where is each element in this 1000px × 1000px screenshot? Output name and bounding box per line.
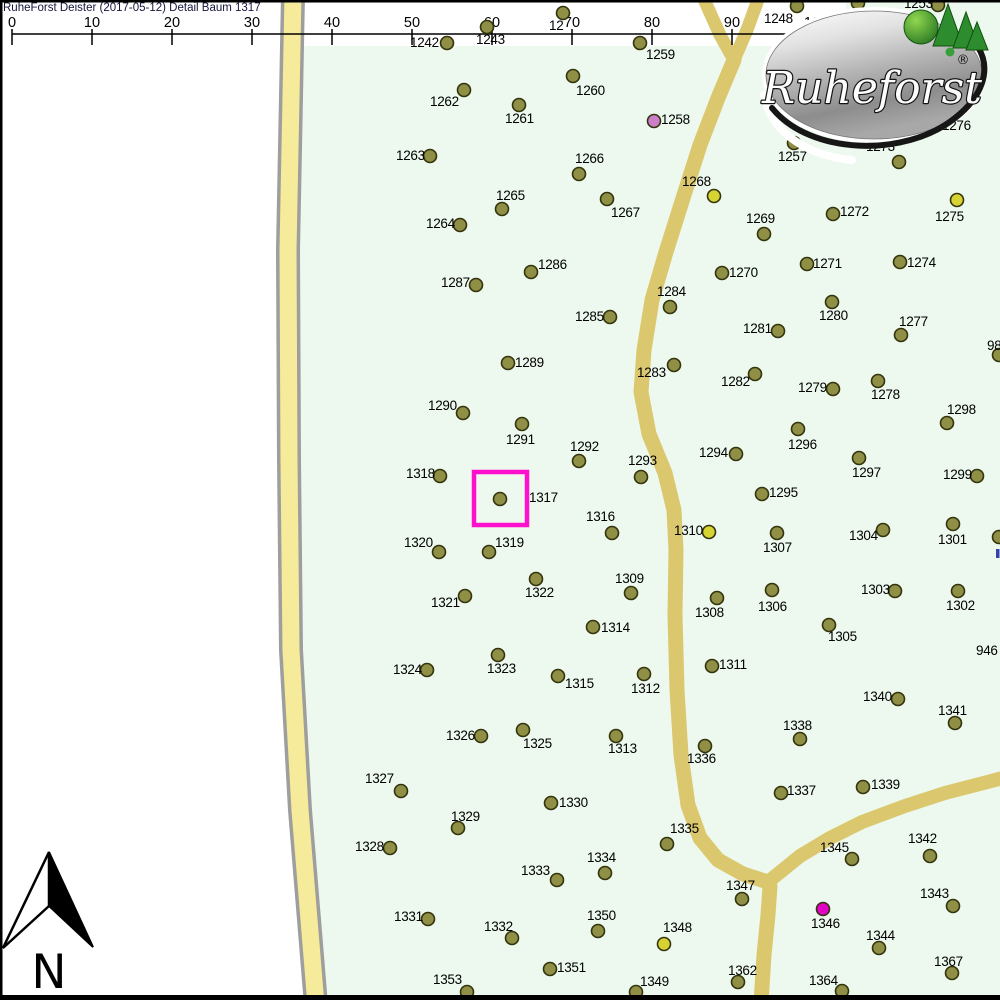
tree-dot-1289 [502,357,515,370]
tree-label-1289: 1289 [515,355,544,370]
tree-dot-1260 [567,70,580,83]
tree-label-1287: 1287 [441,275,470,290]
tree-label-1248: 1248 [764,11,793,26]
tree-dot-1315 [552,670,565,683]
tree-label-1325: 1325 [523,736,552,751]
tree-label-1307: 1307 [763,540,792,555]
tree-label-1277: 1277 [899,314,928,329]
tree-dot-1333 [551,874,564,887]
tree-label-1266: 1266 [575,151,604,166]
tree-label-12: 12 [549,18,563,33]
tree-label-1323: 1323 [487,661,516,676]
tree-label-1298: 1298 [947,402,976,417]
tree-label-1344: 1344 [866,928,896,943]
tree-label-1261: 1261 [505,111,534,126]
tree-label-1345: 1345 [820,840,849,855]
tree-label-1332: 1332 [484,919,513,934]
tree-dot-1304 [877,524,890,537]
tree-label-1285: 1285 [575,309,604,324]
tree-label-1346: 1346 [811,916,840,931]
tree-label-1350: 1350 [587,908,616,923]
tree-dot-1261 [513,99,526,112]
tree-label-1317: 1317 [529,490,558,505]
tree-label-1295: 1295 [769,485,798,500]
border-top [0,0,1000,3]
tree-dot-1294 [730,448,743,461]
scalebar-label-90: 90 [724,15,740,31]
tree-label-1292: 1292 [570,439,599,454]
tree-label-1262: 1262 [430,94,459,109]
tree-dot-1310 [703,526,716,539]
tree-dot-1320 [433,546,446,559]
tree-label-1328: 1328 [355,839,384,854]
tree-label-1274: 1274 [907,255,937,270]
tree-dot-1344 [873,942,886,955]
tree-label-1269: 1269 [746,211,775,226]
tree-label-1242: 1242 [410,35,439,50]
tree-dot-1292 [573,455,586,468]
tree-label-1294: 1294 [699,445,729,460]
forest-map: 0102030405060708090100m RuheForst Deiste… [0,0,1000,1000]
tree-label-1340: 1340 [863,689,892,704]
tree-label-946: 946 [976,643,998,658]
tree-label-1331: 1331 [394,909,423,924]
tree-label-1265: 1265 [496,188,525,203]
tree-dot-1273 [893,156,906,169]
tree-label-1337: 1337 [787,783,816,798]
tree-dot-1263 [424,150,437,163]
tree-dot-1279 [827,383,840,396]
tree-dot-1328 [384,842,397,855]
tree-label-1296: 1296 [788,437,817,452]
unknown-blue-mark [996,549,1000,558]
tree-label-1313: 1313 [608,741,637,756]
tree-label-1322: 1322 [525,585,554,600]
tree-dot-1275 [951,194,964,207]
tree-dot-1312 [638,668,651,681]
tree-dot-unlabeled [993,531,1000,544]
tree-label-1326: 1326 [446,728,475,743]
tree-label-1303: 1303 [861,582,890,597]
tree-label-1342: 1342 [908,831,937,846]
tree-label-1349: 1349 [640,974,669,989]
tree-dot-1322 [530,573,543,586]
tree-label-1279: 1279 [798,380,827,395]
tree-label-1259: 1259 [646,47,675,62]
scalebar-label-30: 30 [244,15,260,31]
tree-label-1302: 1302 [946,598,975,613]
tree-dot-1278 [872,375,885,388]
border-left [0,0,3,1000]
tree-dot-1302 [952,585,965,598]
tree-label-1304: 1304 [849,528,879,543]
tree-label-1267: 1267 [611,205,640,220]
tree-label-1243: 1243 [476,32,505,47]
tree-label-1293: 1293 [628,453,657,468]
tree-dot-1317 [494,493,507,506]
tree-dot-1286 [525,266,538,279]
road-west [288,0,316,1000]
tree-dot-1264 [454,219,467,232]
tree-dot-1311 [706,660,719,673]
tree-dot-1301 [947,518,960,531]
tree-label-1362: 1362 [728,963,757,978]
tree-dot-1325 [517,724,530,737]
logo-deciduous-tree-icon [904,10,938,44]
map-canvas: 0102030405060708090100m RuheForst Deiste… [0,0,1000,1000]
road-branch-south [761,886,770,1000]
scalebar-label-0: 0 [8,15,16,31]
scalebar-label-50: 50 [404,15,420,31]
logo-wordmark: Ruheforst [761,63,982,114]
tree-dot-1271 [801,258,814,271]
tree-dot-1295 [756,488,769,501]
tree-dot-1338 [794,733,807,746]
tree-dot-1342 [924,850,937,863]
tree-dot-1280 [826,296,839,309]
tree-label-1315: 1315 [565,676,594,691]
tree-dot-1287 [470,279,483,292]
north-arrow-label: N [31,945,66,1000]
tree-dot-1341 [949,717,962,730]
tree-dot-1334 [599,867,612,880]
tree-label-1336: 1336 [687,751,716,766]
tree-label-1263: 1263 [396,148,425,163]
tree-label-1270: 1270 [729,265,758,280]
tree-dot-1262 [458,84,471,97]
tree-label-1335: 1335 [670,821,699,836]
tree-dot-1297 [853,452,866,465]
tree-label-1339: 1339 [871,777,900,792]
tree-label-1297: 1297 [852,465,881,480]
tree-dot-1316 [606,527,619,540]
tree-dot-1258 [648,115,661,128]
tree-dot-1283 [668,359,681,372]
tree-label-1329: 1329 [451,809,480,824]
tree-dot-1272 [827,208,840,221]
tree-dot-1242 [441,37,454,50]
tree-label-1310: 1310 [674,523,703,538]
tree-label-1330: 1330 [559,795,588,810]
tree-dot-1281 [772,325,785,338]
tree-dot-1335 [661,838,674,851]
tree-dot-1270 [716,267,729,280]
tree-label-1258: 1258 [661,112,690,127]
tree-label-1278: 1278 [871,387,900,402]
tree-dot-1282 [749,368,762,381]
tree-dot-1303 [889,585,902,598]
tree-label-1347: 1347 [726,878,755,893]
tree-dot-1337 [775,787,788,800]
scalebar-label-80: 80 [644,15,660,31]
border-bottom [0,995,1000,1000]
tree-label-1272: 1272 [840,204,869,219]
logo-registered-mark: ® [957,53,970,68]
tree-label-1275: 1275 [935,209,964,224]
tree-dot-1274 [894,256,907,269]
tree-dot-1306 [766,584,779,597]
tree-label-1319: 1319 [495,535,524,550]
tree-label-1290: 1290 [428,398,457,413]
tree-label-1284: 1284 [657,284,687,299]
tree-dot-1291 [516,418,529,431]
tree-dot-1266 [573,168,586,181]
tree-label-1257: 1257 [778,149,807,164]
map-title: RuheForst Deister (2017-05-12) Detail Ba… [3,2,261,14]
tree-dot-1259 [634,37,647,50]
unmapped-area-west [0,0,304,1000]
logo-shrub-icon [946,48,955,57]
tree-label-1324: 1324 [393,662,423,677]
tree-dot-1326 [475,730,488,743]
tree-label-1320: 1320 [404,535,433,550]
tree-label-1341: 1341 [938,703,967,718]
tree-dot-1299 [971,470,984,483]
tree-label-1364: 1364 [809,973,839,988]
tree-label-1338: 1338 [783,718,812,733]
tree-label-1281: 1281 [743,321,772,336]
tree-label-1283: 1283 [637,365,666,380]
tree-label-1260: 1260 [576,83,605,98]
tree-dot-1323 [492,649,505,662]
tree-label-1286: 1286 [538,257,567,272]
tree-dot-1293 [635,471,648,484]
tree-dot-1351 [544,963,557,976]
tree-label-98: 98 [987,338,1000,353]
tree-dot-1343 [947,900,960,913]
tree-label-1280: 1280 [819,308,848,323]
tree-dot-1296 [792,423,805,436]
tree-dot-1350 [592,925,605,938]
tree-label-1318: 1318 [406,466,435,481]
tree-label-1291: 1291 [506,432,535,447]
tree-label-1351: 1351 [557,960,586,975]
tree-label-1301: 1301 [938,532,967,547]
tree-dot-1269 [758,228,771,241]
tree-label-1305: 1305 [828,629,857,644]
tree-dot-1268 [708,190,721,203]
tree-label-1306: 1306 [758,599,787,614]
tree-label-1321: 1321 [431,595,460,610]
tree-dot-1267 [601,193,614,206]
tree-dot-1318 [434,470,447,483]
tree-label-1334: 1334 [587,850,617,865]
ruheforst-logo: Ruheforst ® [761,4,988,160]
tree-dot-1314 [587,621,600,634]
tree-dot-1284 [664,301,677,314]
tree-label-1343: 1343 [920,886,949,901]
tree-dot-1308 [711,592,724,605]
tree-label-1314: 1314 [601,620,631,635]
tree-dot-1277 [895,329,908,342]
tree-label-1367: 1367 [934,954,963,969]
tree-label-1327: 1327 [365,771,394,786]
tree-label-1309: 1309 [615,571,644,586]
tree-label-1353: 1353 [433,972,462,987]
tree-label-1308: 1308 [695,605,724,620]
scalebar-label-10: 10 [84,15,100,31]
tree-label-1271: 1271 [813,256,842,271]
tree-label-1333: 1333 [521,863,550,878]
tree-dot-1327 [395,785,408,798]
tree-label-1299: 1299 [943,467,972,482]
tree-label-1348: 1348 [663,920,692,935]
tree-label-1312: 1312 [631,681,660,696]
tree-dot-1324 [421,664,434,677]
tree-dot-1265 [496,203,509,216]
tree-label-1282: 1282 [721,374,750,389]
tree-label-1316: 1316 [586,509,615,524]
tree-dot-1347 [736,893,749,906]
tree-dot-1348 [658,938,671,951]
tree-dot-1340 [892,693,905,706]
tree-dot-1330 [545,797,558,810]
tree-dot-1307 [771,527,784,540]
tree-label-1264: 1264 [426,216,456,231]
tree-dot-1309 [625,587,638,600]
tree-dot-1331 [422,913,435,926]
tree-label-1268: 1268 [682,174,711,189]
tree-dot-1321 [459,590,472,603]
scalebar-label-40: 40 [324,15,340,31]
tree-dot-1290 [457,407,470,420]
scalebar-label-20: 20 [164,15,180,31]
tree-dot-1319 [483,546,496,559]
tree-label-1311: 1311 [719,657,747,672]
tree-dot-1346 [817,903,830,916]
tree-dot-1298 [941,417,954,430]
tree-dot-1285 [604,311,617,324]
tree-dot-1339 [857,781,870,794]
